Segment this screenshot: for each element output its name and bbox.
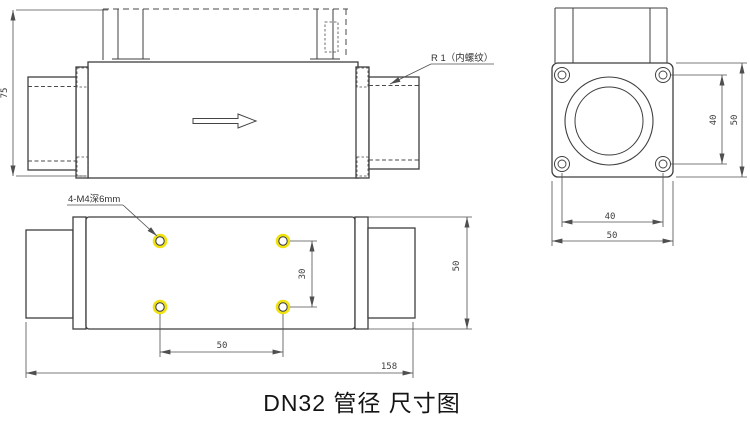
dim-label-50h: 50 xyxy=(607,231,618,241)
right-flange xyxy=(356,67,369,178)
end-view: 40 50 40 50 xyxy=(552,8,747,246)
dim-label-75: 75 xyxy=(0,88,10,99)
hidden-thread-detail xyxy=(325,22,338,52)
left-flange xyxy=(73,217,86,329)
drawing-title: DN32 管径 尺寸图 xyxy=(263,390,461,416)
right-pipe-thread xyxy=(369,77,419,169)
left-pipe-thread xyxy=(28,77,76,170)
dim-label-50-width: 50 xyxy=(452,261,462,272)
right-flange xyxy=(355,217,368,329)
dim-bolt-spacing-h: 40 xyxy=(562,173,663,227)
right-pipe xyxy=(368,228,415,318)
thread-label-text: R 1（内螺纹） xyxy=(431,52,493,64)
hole-label-text: 4-M4深6mm xyxy=(68,194,120,205)
body-face xyxy=(86,217,355,329)
mounting-hole xyxy=(154,301,166,313)
coil-outline xyxy=(103,9,348,60)
end-pipe xyxy=(555,8,667,63)
left-pipe xyxy=(26,230,73,318)
dim-label-40v: 40 xyxy=(709,115,719,126)
dimension-drawing: 75 R 1（内螺纹） xyxy=(0,0,750,428)
mounting-hole xyxy=(277,235,289,247)
coil-legs xyxy=(112,9,340,59)
dim-bolt-spacing-v: 40 xyxy=(671,75,727,164)
plan-view: 4-M4深6mm 30 50 158 xyxy=(26,194,472,378)
dim-label-50v: 50 xyxy=(730,115,740,126)
flange-face xyxy=(552,63,673,177)
dim-label-30: 30 xyxy=(298,269,308,280)
side-view: 75 R 1（内螺纹） xyxy=(0,9,494,178)
left-flange xyxy=(76,67,88,178)
mounting-hole xyxy=(154,235,166,247)
drawing-canvas: 75 R 1（内螺纹） xyxy=(0,0,750,428)
dim-label-158: 158 xyxy=(381,362,397,372)
dim-label-50: 50 xyxy=(217,341,228,351)
mounting-hole xyxy=(277,301,289,313)
dim-label-40h: 40 xyxy=(605,212,616,222)
